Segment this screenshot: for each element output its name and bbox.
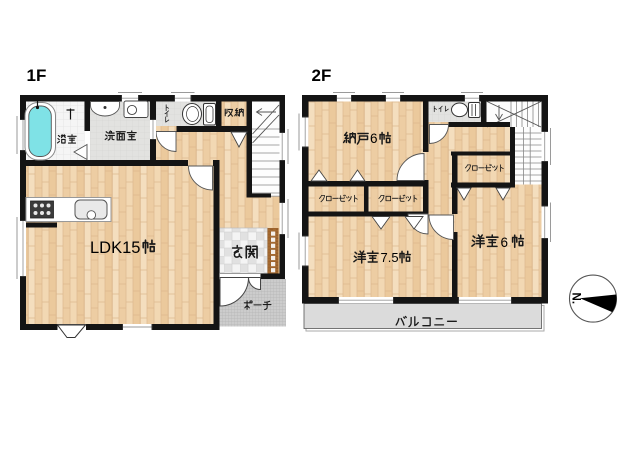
svg-text:LDK15: LDK15 bbox=[90, 239, 140, 257]
svg-text:7.5: 7.5 bbox=[381, 250, 399, 265]
svg-text:1F: 1F bbox=[27, 66, 47, 85]
svg-text:6: 6 bbox=[501, 235, 509, 250]
svg-text:2F: 2F bbox=[312, 66, 332, 85]
svg-text:6: 6 bbox=[370, 131, 378, 146]
svg-text:N.: N. bbox=[569, 293, 581, 305]
